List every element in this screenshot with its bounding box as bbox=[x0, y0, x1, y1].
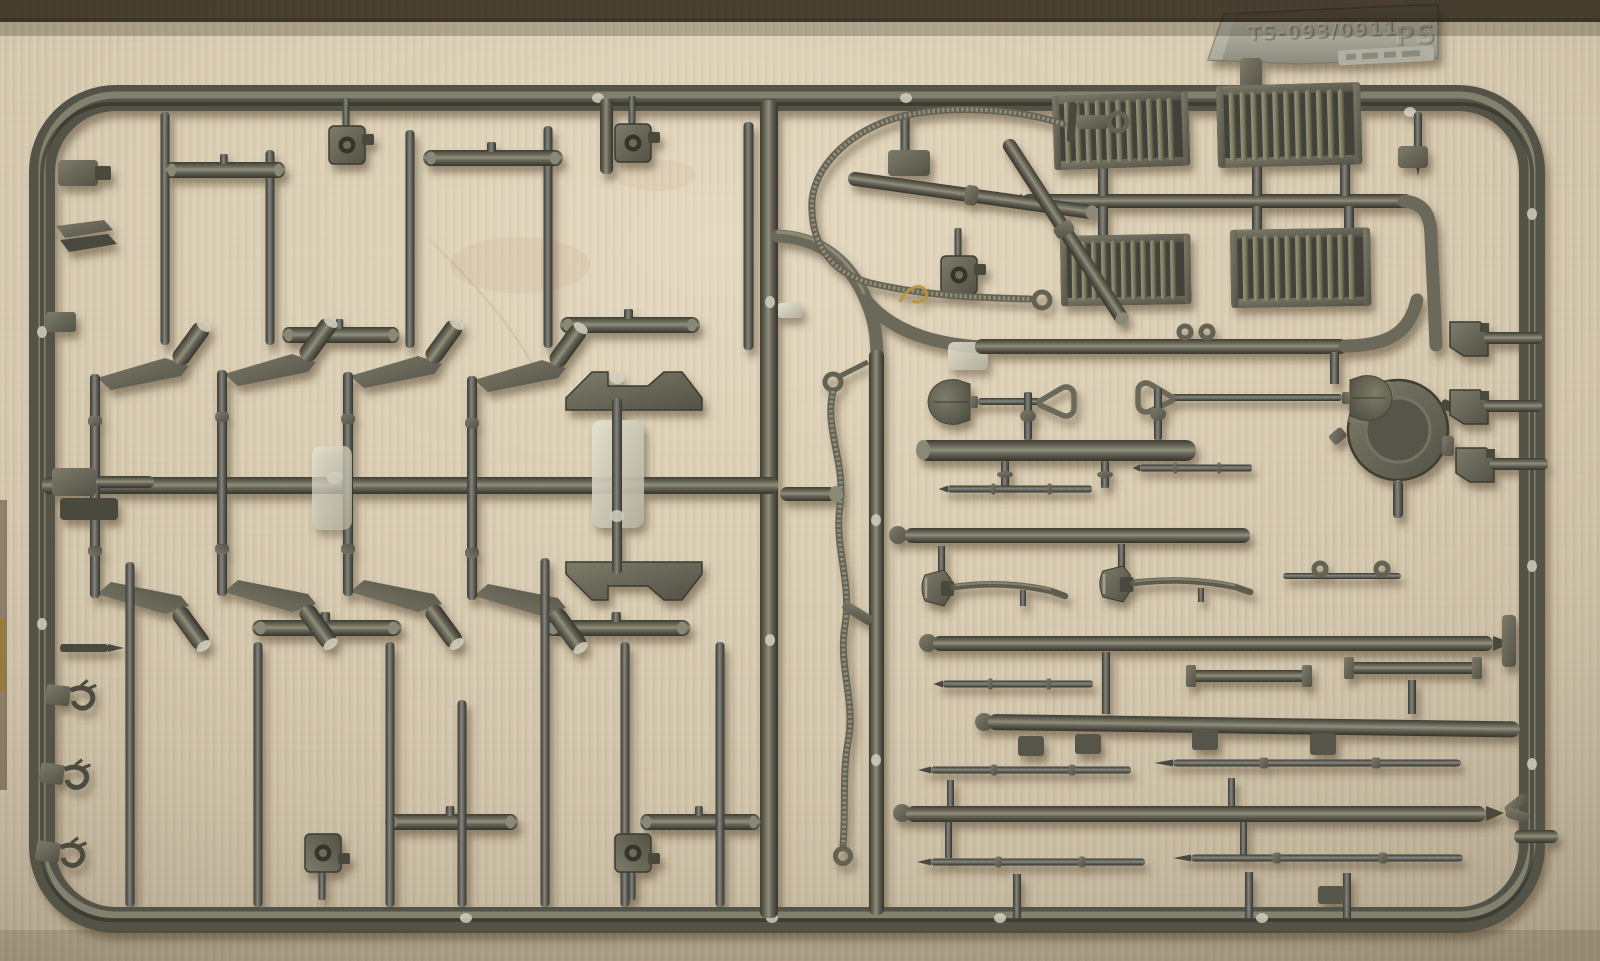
axe-gate bbox=[938, 546, 945, 572]
tool-row-runner bbox=[905, 528, 1250, 543]
secondary-vertical-runner bbox=[869, 350, 884, 915]
hatch-gate bbox=[1330, 352, 1339, 384]
handle-pin bbox=[1198, 588, 1204, 602]
frame-stub bbox=[1514, 830, 1558, 843]
grille-gate bbox=[1252, 162, 1262, 196]
rod-gate bbox=[1228, 778, 1235, 806]
edge-clip-tab bbox=[95, 166, 111, 180]
louvered-grille bbox=[1230, 228, 1371, 308]
rod-gate bbox=[1240, 822, 1247, 858]
edge-clip bbox=[58, 160, 98, 186]
end-bracket bbox=[1502, 615, 1516, 667]
gate-pad bbox=[1018, 736, 1044, 756]
photo-of-sprue: TS-093/0911 TS-093/0911 PS PS bbox=[0, 0, 1600, 961]
tube-cap bbox=[916, 440, 930, 460]
fabric-stain bbox=[450, 237, 590, 293]
sprue-photo-canvas: TS-093/0911 TS-093/0911 PS PS bbox=[0, 0, 1600, 961]
vertical-rod bbox=[744, 122, 754, 350]
frame-gate bbox=[1343, 873, 1351, 918]
vertical-rod bbox=[126, 562, 135, 907]
runner-gate bbox=[1408, 680, 1416, 714]
center-divider-runner bbox=[760, 100, 778, 918]
edge-stub bbox=[96, 476, 154, 488]
corner-bracket bbox=[1398, 146, 1428, 168]
stub-cap bbox=[829, 486, 843, 502]
vertical-rod bbox=[406, 130, 415, 348]
top-feed-stub bbox=[600, 98, 613, 174]
vertical-rod bbox=[386, 642, 395, 907]
gate-pad bbox=[1192, 730, 1218, 750]
vertical-rod bbox=[266, 150, 275, 345]
corner-bracket bbox=[888, 150, 930, 176]
edge-block bbox=[60, 498, 118, 520]
vertical-rod bbox=[458, 700, 467, 907]
ball-gate bbox=[889, 526, 907, 544]
stub-tube bbox=[780, 487, 836, 501]
vertical-rod bbox=[254, 642, 263, 907]
mid-right-runner bbox=[975, 339, 1347, 354]
frame-gate bbox=[1245, 872, 1253, 918]
photo-bottom-shade bbox=[0, 930, 1600, 961]
grille-gate bbox=[1098, 168, 1108, 196]
louvered-grille bbox=[1216, 82, 1362, 168]
bottom-row-runner bbox=[906, 806, 1486, 822]
handle-pin bbox=[1020, 590, 1026, 606]
vertical-rod bbox=[541, 558, 550, 907]
runner-gate bbox=[1102, 652, 1110, 714]
cable-clevis bbox=[1076, 115, 1110, 129]
photo-top-shadow-fade bbox=[0, 18, 1600, 36]
rod-gate bbox=[947, 780, 954, 806]
edge-block bbox=[52, 468, 96, 496]
pointed-spur bbox=[60, 644, 108, 652]
gate-pad bbox=[1318, 886, 1344, 904]
gate-pad bbox=[1310, 733, 1336, 755]
grille-gate bbox=[1098, 206, 1108, 238]
gate-shine-pad bbox=[778, 303, 802, 318]
rod-gate bbox=[945, 822, 952, 858]
long-runner bbox=[933, 636, 1493, 651]
fabric-stain bbox=[615, 159, 695, 191]
frame-gate bbox=[1013, 874, 1021, 918]
gate-pad bbox=[1075, 734, 1101, 754]
axe-gate bbox=[1118, 544, 1125, 568]
thick-tube-part bbox=[918, 440, 1196, 461]
vertical-rod bbox=[716, 642, 725, 907]
stray-yellow-fiber bbox=[0, 618, 5, 692]
gate-shine-pad bbox=[312, 446, 352, 530]
vertical-rod bbox=[161, 112, 170, 345]
grille-gate bbox=[1340, 160, 1350, 196]
edge-block bbox=[46, 312, 76, 332]
